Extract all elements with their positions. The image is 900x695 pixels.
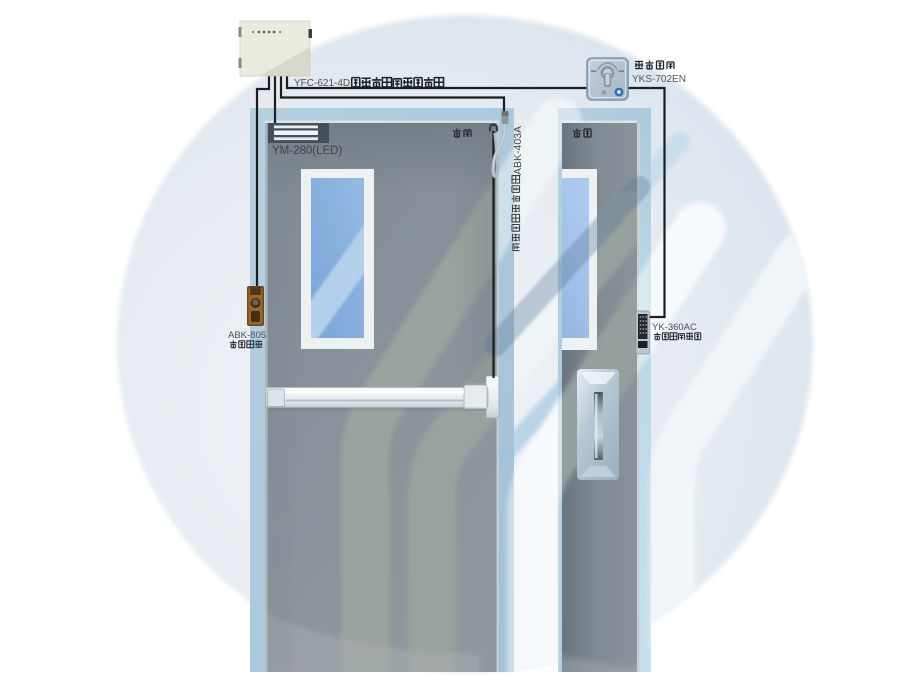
svg-text:ABK-403A: ABK-403A (512, 126, 524, 175)
svg-text:YK-360AC: YK-360AC (652, 322, 697, 333)
svg-text:YM-280(LED): YM-280(LED) (272, 145, 342, 157)
svg-text:YFC-621-4D: YFC-621-4D (294, 78, 350, 89)
svg-text:ABK-805: ABK-805 (228, 330, 266, 341)
svg-text:YKS-702EN: YKS-702EN (632, 74, 686, 85)
